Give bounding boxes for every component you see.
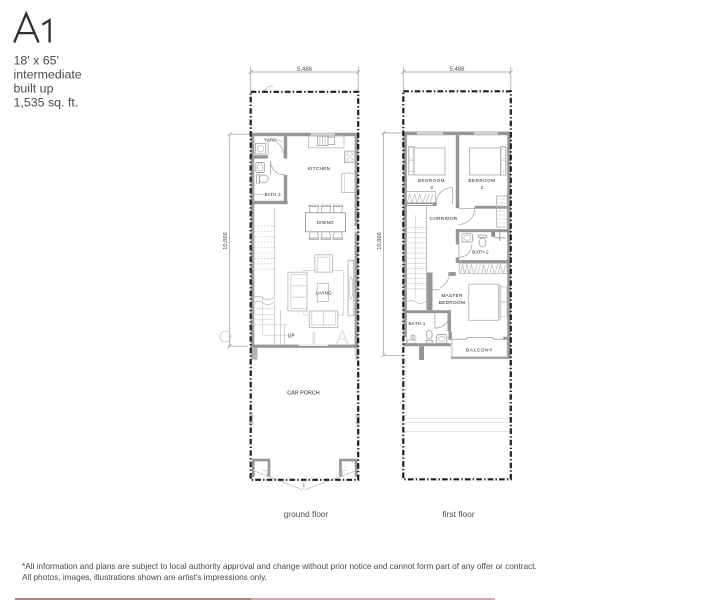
- svg-text:10,866: 10,866: [377, 232, 383, 250]
- svg-text:CAR PORCH: CAR PORCH: [287, 390, 320, 396]
- svg-text:*All information and plans are: *All information and plans are subject t…: [22, 562, 537, 571]
- svg-text:MASTER: MASTER: [441, 293, 463, 298]
- svg-text:1,535 sq. ft.: 1,535 sq. ft.: [14, 96, 79, 110]
- svg-text:BEDROOM: BEDROOM: [439, 300, 465, 305]
- svg-text:A: A: [336, 327, 349, 349]
- svg-text:DINING: DINING: [317, 220, 334, 225]
- svg-text:10,866: 10,866: [223, 232, 229, 250]
- svg-text:5,486: 5,486: [297, 67, 313, 73]
- svg-text:All photos, images, illustrati: All photos, images, illustrations shown …: [22, 573, 267, 582]
- svg-text:KITCHEN: KITCHEN: [308, 166, 331, 171]
- svg-text:BALCONY: BALCONY: [466, 348, 493, 353]
- svg-text:2: 2: [481, 185, 484, 190]
- svg-text:BATH 1: BATH 1: [409, 321, 426, 326]
- svg-text:18' x 65': 18' x 65': [14, 54, 59, 68]
- svg-text:BATH 2: BATH 2: [472, 249, 489, 254]
- svg-text:built up: built up: [14, 82, 54, 96]
- svg-text:ground floor: ground floor: [284, 509, 329, 519]
- svg-text:BEDROOM: BEDROOM: [418, 178, 445, 183]
- svg-text:LIVING: LIVING: [316, 291, 332, 296]
- svg-text:first floor: first floor: [442, 509, 474, 519]
- svg-text:CORRIDOR: CORRIDOR: [430, 216, 458, 221]
- svg-text:intermediate: intermediate: [14, 68, 82, 82]
- svg-text:5,486: 5,486: [449, 67, 465, 73]
- svg-text:UP: UP: [288, 334, 296, 340]
- svg-text:BEDROOM: BEDROOM: [468, 178, 495, 183]
- svg-text:BATH 3: BATH 3: [265, 192, 282, 197]
- svg-text:3: 3: [430, 185, 433, 190]
